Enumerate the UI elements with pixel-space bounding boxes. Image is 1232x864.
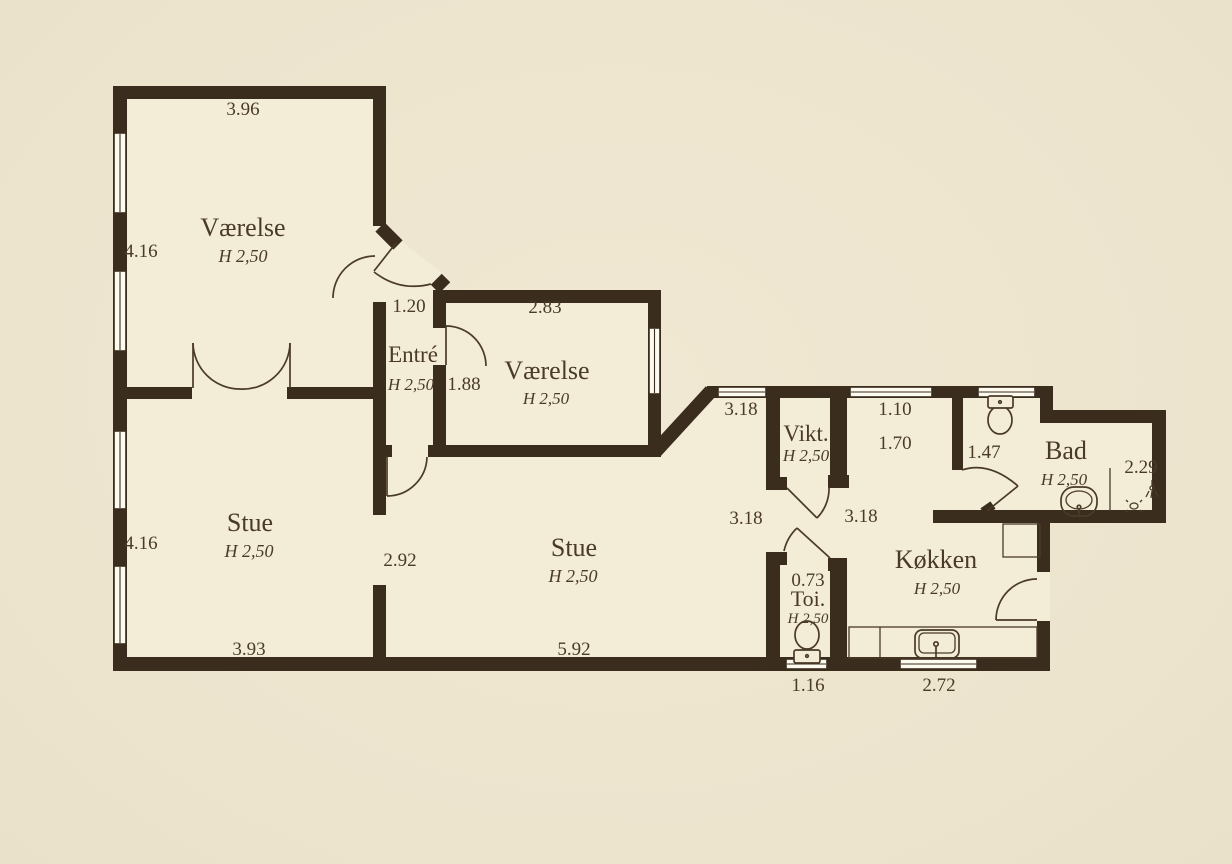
dim-entre-width: 1.88 <box>447 374 480 395</box>
window <box>649 328 660 394</box>
dim-stue-main-right: 3.18 <box>729 508 762 529</box>
room-label-toi: Toi. <box>791 586 826 611</box>
ceiling-bad: H 2,50 <box>1040 470 1088 489</box>
window <box>850 387 932 397</box>
dim-kokken-window: 1.10 <box>878 399 911 420</box>
ceiling-stue-left: H 2,50 <box>224 541 274 561</box>
ceiling-entre: H 2,50 <box>387 375 435 394</box>
ceiling-vikt: H 2,50 <box>782 446 830 465</box>
dim-vaerelse2-top: 2.83 <box>528 297 561 318</box>
window <box>114 133 126 213</box>
dim-stue-main-bottom: 5.92 <box>557 639 590 660</box>
ceiling-vaerelse1: H 2,50 <box>218 246 268 266</box>
dim-vaerelse1-top: 3.96 <box>226 99 259 120</box>
dim-kokken-bottom: 2.72 <box>922 675 955 696</box>
ceiling-toi: H 2,50 <box>787 611 829 627</box>
room-label-bad: Bad <box>1045 436 1087 465</box>
dim-bad-right: 2.29 <box>1124 457 1157 478</box>
dim-stue-main-top: 3.18 <box>724 399 757 420</box>
dim-entre-passage: 1.20 <box>392 296 425 317</box>
floor-plan-page: 3.96 Værelse H 2,50 4.16 1.20 Entré H 2,… <box>0 0 1232 864</box>
ceiling-kokken: H 2,50 <box>913 579 961 598</box>
room-label-vaerelse1: Værelse <box>200 213 285 242</box>
dim-toi-bottom: 1.16 <box>791 675 824 696</box>
ceiling-stue-main: H 2,50 <box>548 566 598 586</box>
room-label-stue-left: Stue <box>227 508 273 537</box>
dim-stue-left-left: 4.16 <box>124 533 157 554</box>
room-label-stue-main: Stue <box>551 533 597 562</box>
dim-stue-opening: 2.92 <box>383 550 416 571</box>
dim-kokken-left: 3.18 <box>844 506 877 527</box>
dim-vaerelse1-left: 4.16 <box>124 241 157 262</box>
ceiling-vaerelse2: H 2,50 <box>522 389 570 408</box>
room-label-kokken: Køkken <box>895 545 977 574</box>
dim-stue-left-bottom: 3.93 <box>232 639 265 660</box>
dim-kokken-top: 1.70 <box>878 433 911 454</box>
dim-bad-door: 1.47 <box>967 442 1000 463</box>
window <box>114 566 126 644</box>
room-label-vaerelse2: Værelse <box>504 356 589 385</box>
room-label-vikt: Vikt. <box>783 421 828 446</box>
floor-plan: 3.96 Værelse H 2,50 4.16 1.20 Entré H 2,… <box>0 0 1232 864</box>
room-label-entre: Entré <box>388 342 438 367</box>
wall-cap-entre-right <box>435 278 446 289</box>
window <box>718 387 766 397</box>
window <box>114 431 126 509</box>
building-footprint <box>113 86 1166 671</box>
window <box>114 271 126 351</box>
window <box>900 659 977 669</box>
